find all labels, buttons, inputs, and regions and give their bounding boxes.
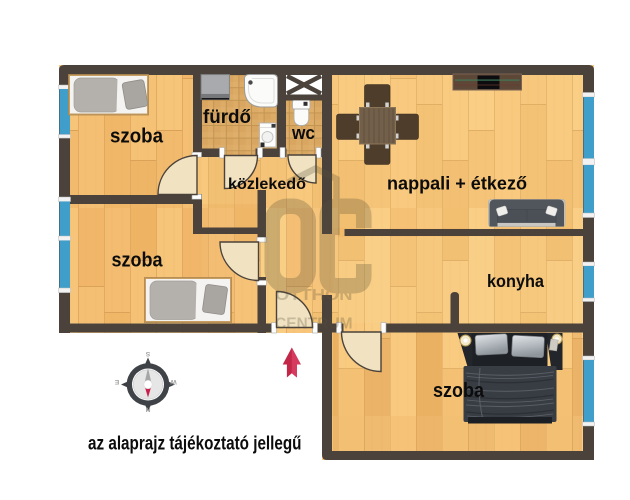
svg-text:E: E: [114, 378, 119, 385]
svg-text:CENTRUM: CENTRUM: [275, 316, 353, 333]
svg-text:fürdő: fürdő: [203, 107, 251, 128]
svg-text:S: S: [145, 350, 150, 357]
svg-text:N: N: [145, 406, 150, 413]
svg-text:OTTHON: OTTHON: [275, 287, 353, 304]
svg-text:közlekedő: közlekedő: [228, 176, 306, 193]
svg-text:az alaprajz tájékoztató jelleg: az alaprajz tájékoztató jellegű: [88, 433, 302, 455]
svg-text:konyha: konyha: [487, 271, 544, 291]
svg-text:wc: wc: [291, 123, 315, 143]
svg-text:szoba: szoba: [112, 250, 164, 272]
svg-text:szoba: szoba: [433, 380, 485, 402]
svg-text:szoba: szoba: [110, 126, 164, 148]
svg-text:W: W: [170, 378, 177, 385]
svg-text:nappali + étkező: nappali + étkező: [387, 173, 527, 194]
